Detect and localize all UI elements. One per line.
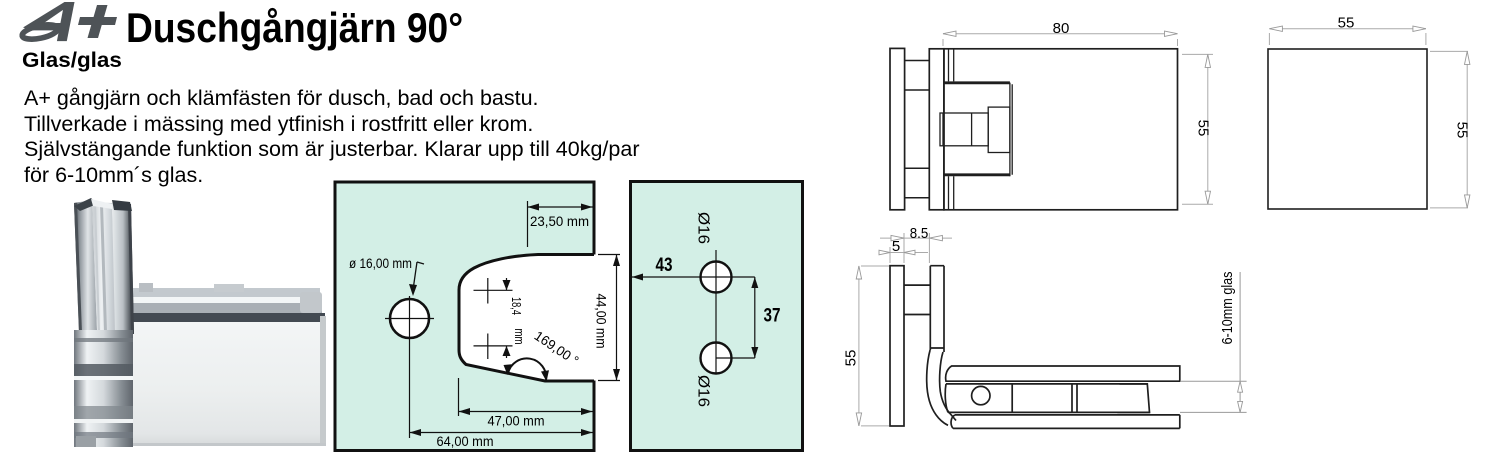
svg-text:55: 55 [843, 350, 860, 367]
svg-text:47,00 mm: 47,00 mm [488, 413, 545, 429]
svg-text:55: 55 [1195, 120, 1212, 137]
svg-text:mm: mm [512, 329, 527, 345]
svg-text:8.5: 8.5 [910, 225, 929, 242]
svg-text:37: 37 [764, 306, 781, 327]
svg-text:64,00 mm: 64,00 mm [437, 433, 494, 449]
svg-text:44,00 mm: 44,00 mm [594, 294, 610, 349]
svg-text:6-10mm glas: 6-10mm glas [1219, 272, 1236, 345]
svg-text:80: 80 [1053, 20, 1070, 37]
svg-text:Ø16: Ø16 [695, 375, 712, 407]
svg-text:23,50 mm: 23,50 mm [530, 213, 589, 229]
svg-text:55: 55 [1338, 15, 1355, 32]
svg-text:5: 5 [892, 238, 900, 255]
svg-text:43: 43 [656, 255, 673, 276]
svg-text:ø 16,00 mm: ø 16,00 mm [349, 255, 412, 271]
svg-text:Ø16: Ø16 [695, 212, 712, 244]
svg-text:18,4: 18,4 [509, 297, 524, 315]
svg-text:55: 55 [1454, 122, 1471, 139]
